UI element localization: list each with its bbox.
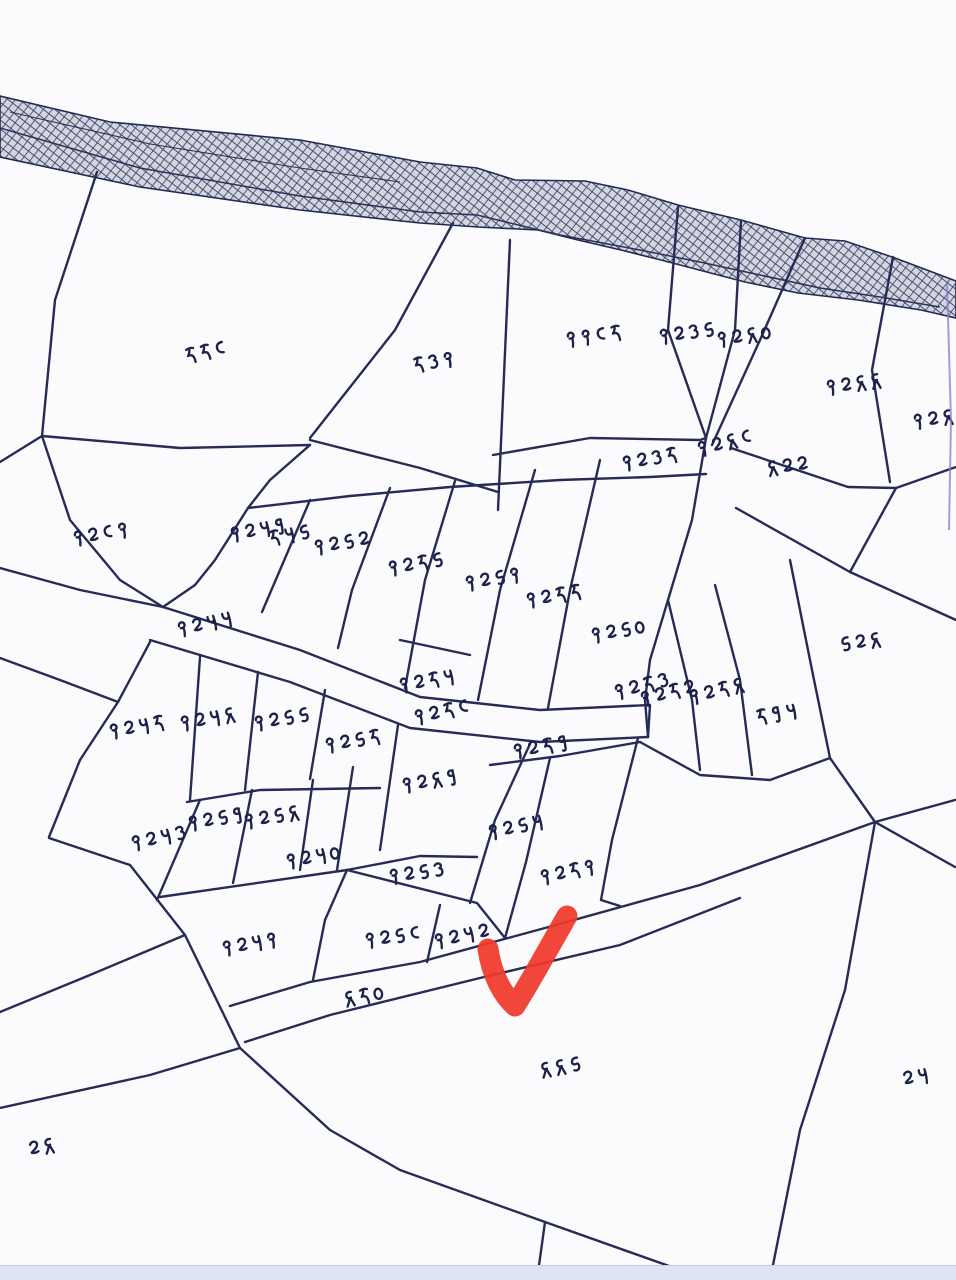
scan-edge-strip — [0, 1266, 956, 1280]
screenshot-root — [0, 0, 956, 1280]
cadastral-map — [0, 0, 956, 1280]
